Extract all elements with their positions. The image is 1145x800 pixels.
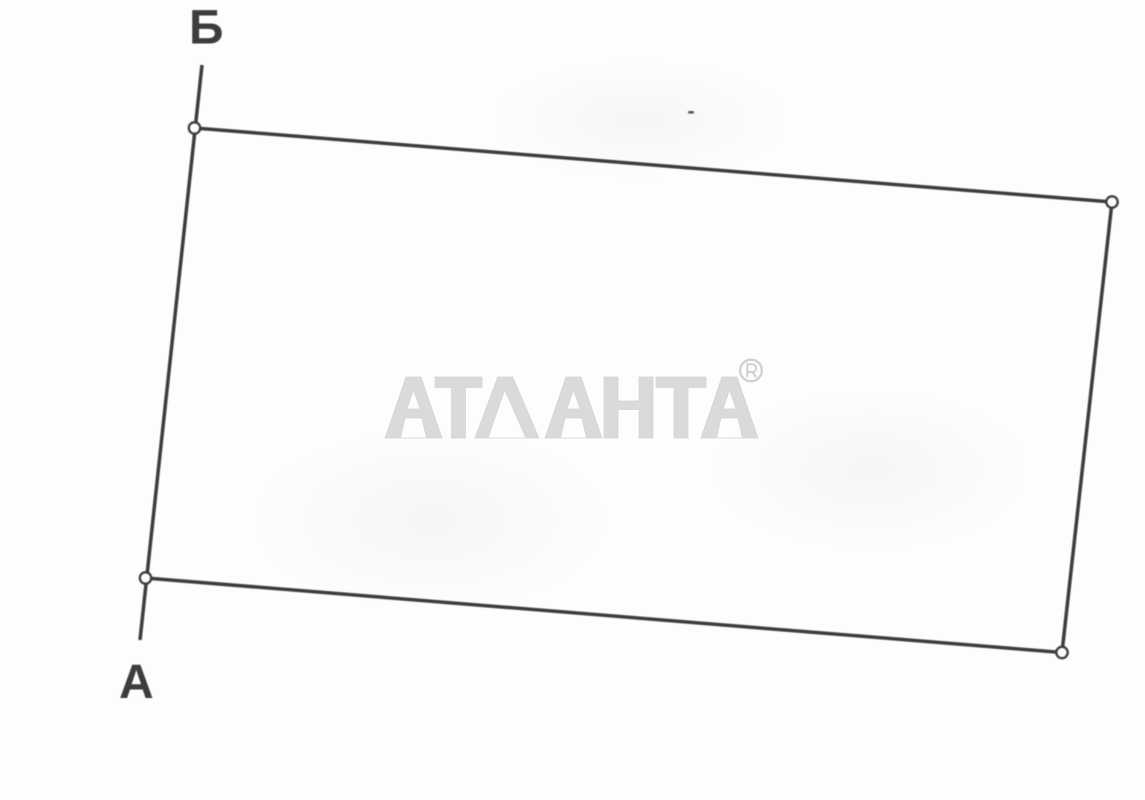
svg-text:Б: Б xyxy=(189,2,224,55)
svg-text:А: А xyxy=(119,656,154,709)
